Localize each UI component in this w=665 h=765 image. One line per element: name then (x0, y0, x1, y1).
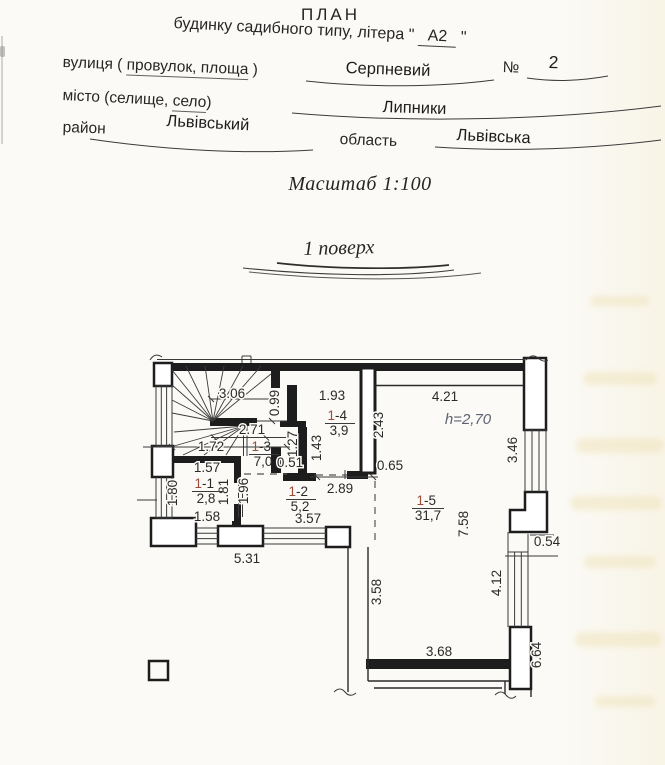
room5-area: 31,7 (415, 508, 441, 523)
dim-room5-bottom: 3.68 (426, 644, 452, 659)
window-right-346 (525, 430, 546, 492)
dim-stair-top: 3.06 (219, 386, 245, 401)
dim-wall-lower-left: 3.58 (369, 579, 384, 605)
room3-area: 7,0 (254, 454, 273, 469)
room2-number-suffix: -2 (296, 484, 308, 499)
right-wall-step-block (510, 492, 547, 532)
window-bottom-left-2 (263, 528, 326, 544)
dim-stub-065: 0.65 (377, 458, 403, 473)
dim-room4-depth: 1.43 (309, 435, 324, 461)
dim-stair-width: 1.72 (198, 439, 224, 454)
window-right-412 (508, 552, 528, 627)
dim-step-054: 0.54 (534, 534, 561, 549)
dim-room1-width-top: 1.57 (194, 460, 220, 475)
ceiling-height-note: h=2,70 (445, 411, 492, 428)
room3-number-prefix: 1 (251, 439, 259, 454)
room4-number-prefix: 1 (327, 408, 335, 423)
top-exterior-wall (155, 363, 525, 371)
room1-number-suffix: -1 (202, 476, 214, 491)
room1-number-prefix: 1 (194, 476, 202, 491)
room4-left-wall (287, 385, 297, 423)
dim-opening-top: 0.99 (267, 390, 282, 416)
room2-number-prefix: 1 (288, 484, 296, 499)
detached-column-square (149, 661, 168, 680)
dim-hall-width: 2.71 (239, 422, 265, 437)
dim-room2-depth: 1.96 (236, 478, 251, 504)
dim-side-lower-right: 6.64 (529, 641, 544, 668)
dim-flue-height: 2.43 (371, 412, 386, 438)
left-corner-pier (151, 518, 196, 546)
window-left-upper (156, 386, 172, 446)
room5-number-suffix: -5 (424, 493, 436, 508)
dim-door-127: 1.27 (285, 431, 300, 457)
right-wall-top-block (524, 358, 546, 430)
right-wall-bottom-block (510, 627, 531, 689)
room-label-1-4: 1 -4 3,9 (325, 408, 355, 438)
break-bottom-left (334, 689, 356, 695)
room4-number-suffix: -4 (335, 408, 347, 423)
bottom-pier-middle (218, 526, 263, 546)
wall-stub-099 (271, 371, 280, 388)
bottom-corner-block (326, 527, 350, 547)
dim-door-051: 0.51 (277, 455, 303, 470)
dim-window-right-top: 3.46 (505, 437, 520, 463)
dim-room1-depth-left: 1.80 (165, 480, 180, 506)
room-label-1-5: 1 -5 31,7 (412, 493, 444, 523)
room-label-1-2: 1 -2 5,2 (286, 484, 316, 514)
room1-area: 2,8 (197, 491, 216, 506)
scanned-floor-plan-document: ПЛАН будинку садибного типу, літера " А2… (0, 0, 665, 765)
room5-number-prefix: 1 (416, 493, 424, 508)
dim-door-289: 2.89 (327, 481, 353, 496)
dim-room1-width-bottom: 1.58 (194, 509, 220, 524)
room5-bottom-wall (366, 659, 512, 669)
dim-room4-width: 1.93 (319, 388, 345, 403)
dim-room5-depth: 7.58 (456, 511, 471, 537)
dim-window-right-bottom: 4.12 (489, 570, 504, 596)
window-bottom-left-1 (196, 528, 218, 544)
room3-number-suffix: -3 (259, 439, 271, 454)
room4-area: 3,9 (330, 423, 349, 438)
floor-plan-drawing: 3.06 0.99 1.93 4.21 2.43 2.71 1.72 1.27 … (0, 0, 665, 765)
room4-wall-jog (280, 421, 306, 427)
dim-window-bottom-outer: 5.31 (234, 551, 260, 566)
left-pier-middle (152, 446, 173, 477)
room2-area: 5,2 (291, 499, 310, 514)
dim-room5-width: 4.21 (432, 389, 458, 404)
left-pier-top (154, 363, 172, 386)
